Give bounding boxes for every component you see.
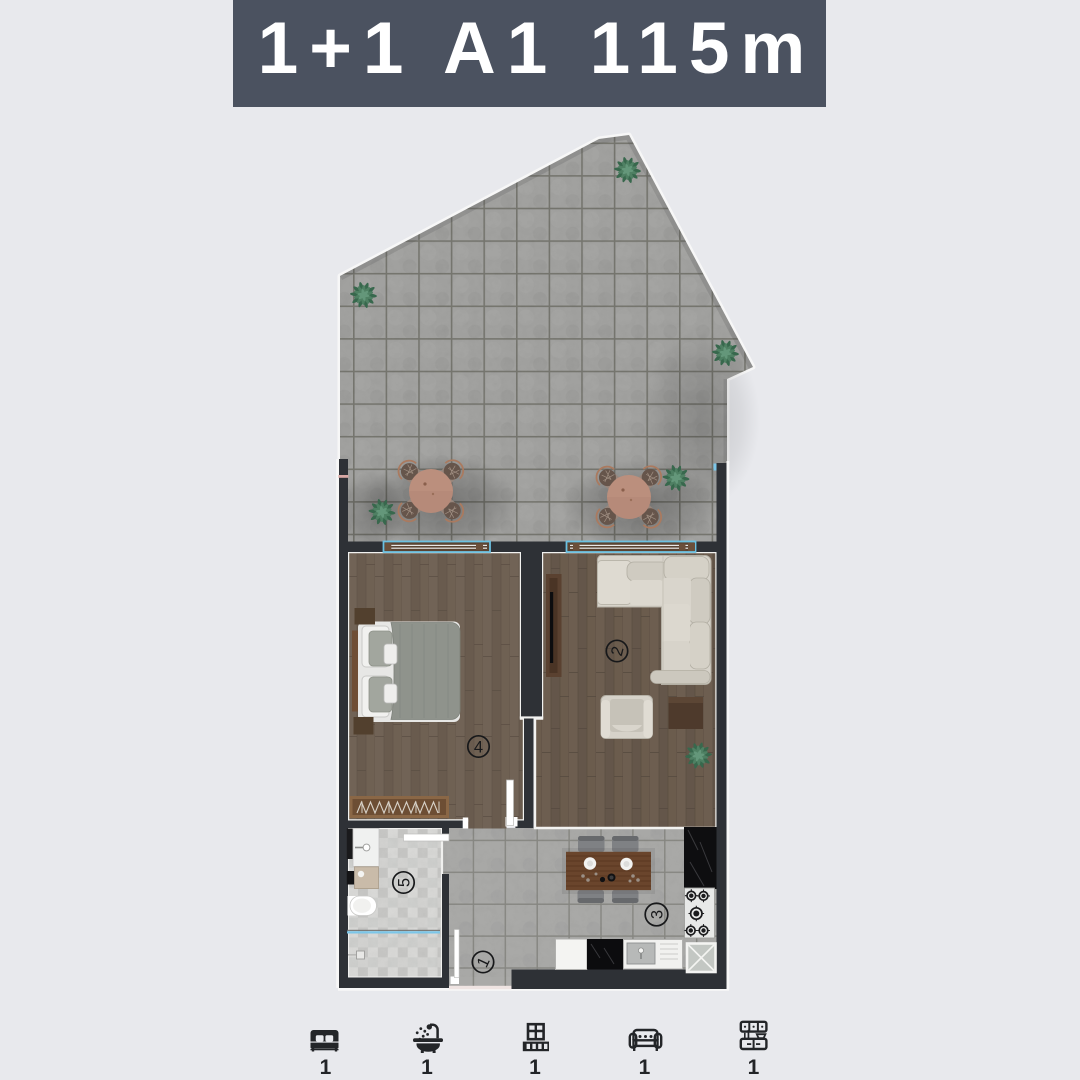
svg-text:1+1 A1 115m: 1+1 A1 115m [258,8,817,89]
svg-text:5: 5 [395,878,413,887]
svg-text:1: 1 [529,1056,541,1079]
svg-text:1: 1 [320,1056,332,1079]
svg-text:1: 1 [748,1056,760,1079]
svg-text:1: 1 [421,1056,433,1079]
svg-text:1: 1 [639,1056,651,1079]
svg-text:3: 3 [648,910,666,919]
svg-text:4: 4 [474,738,483,756]
